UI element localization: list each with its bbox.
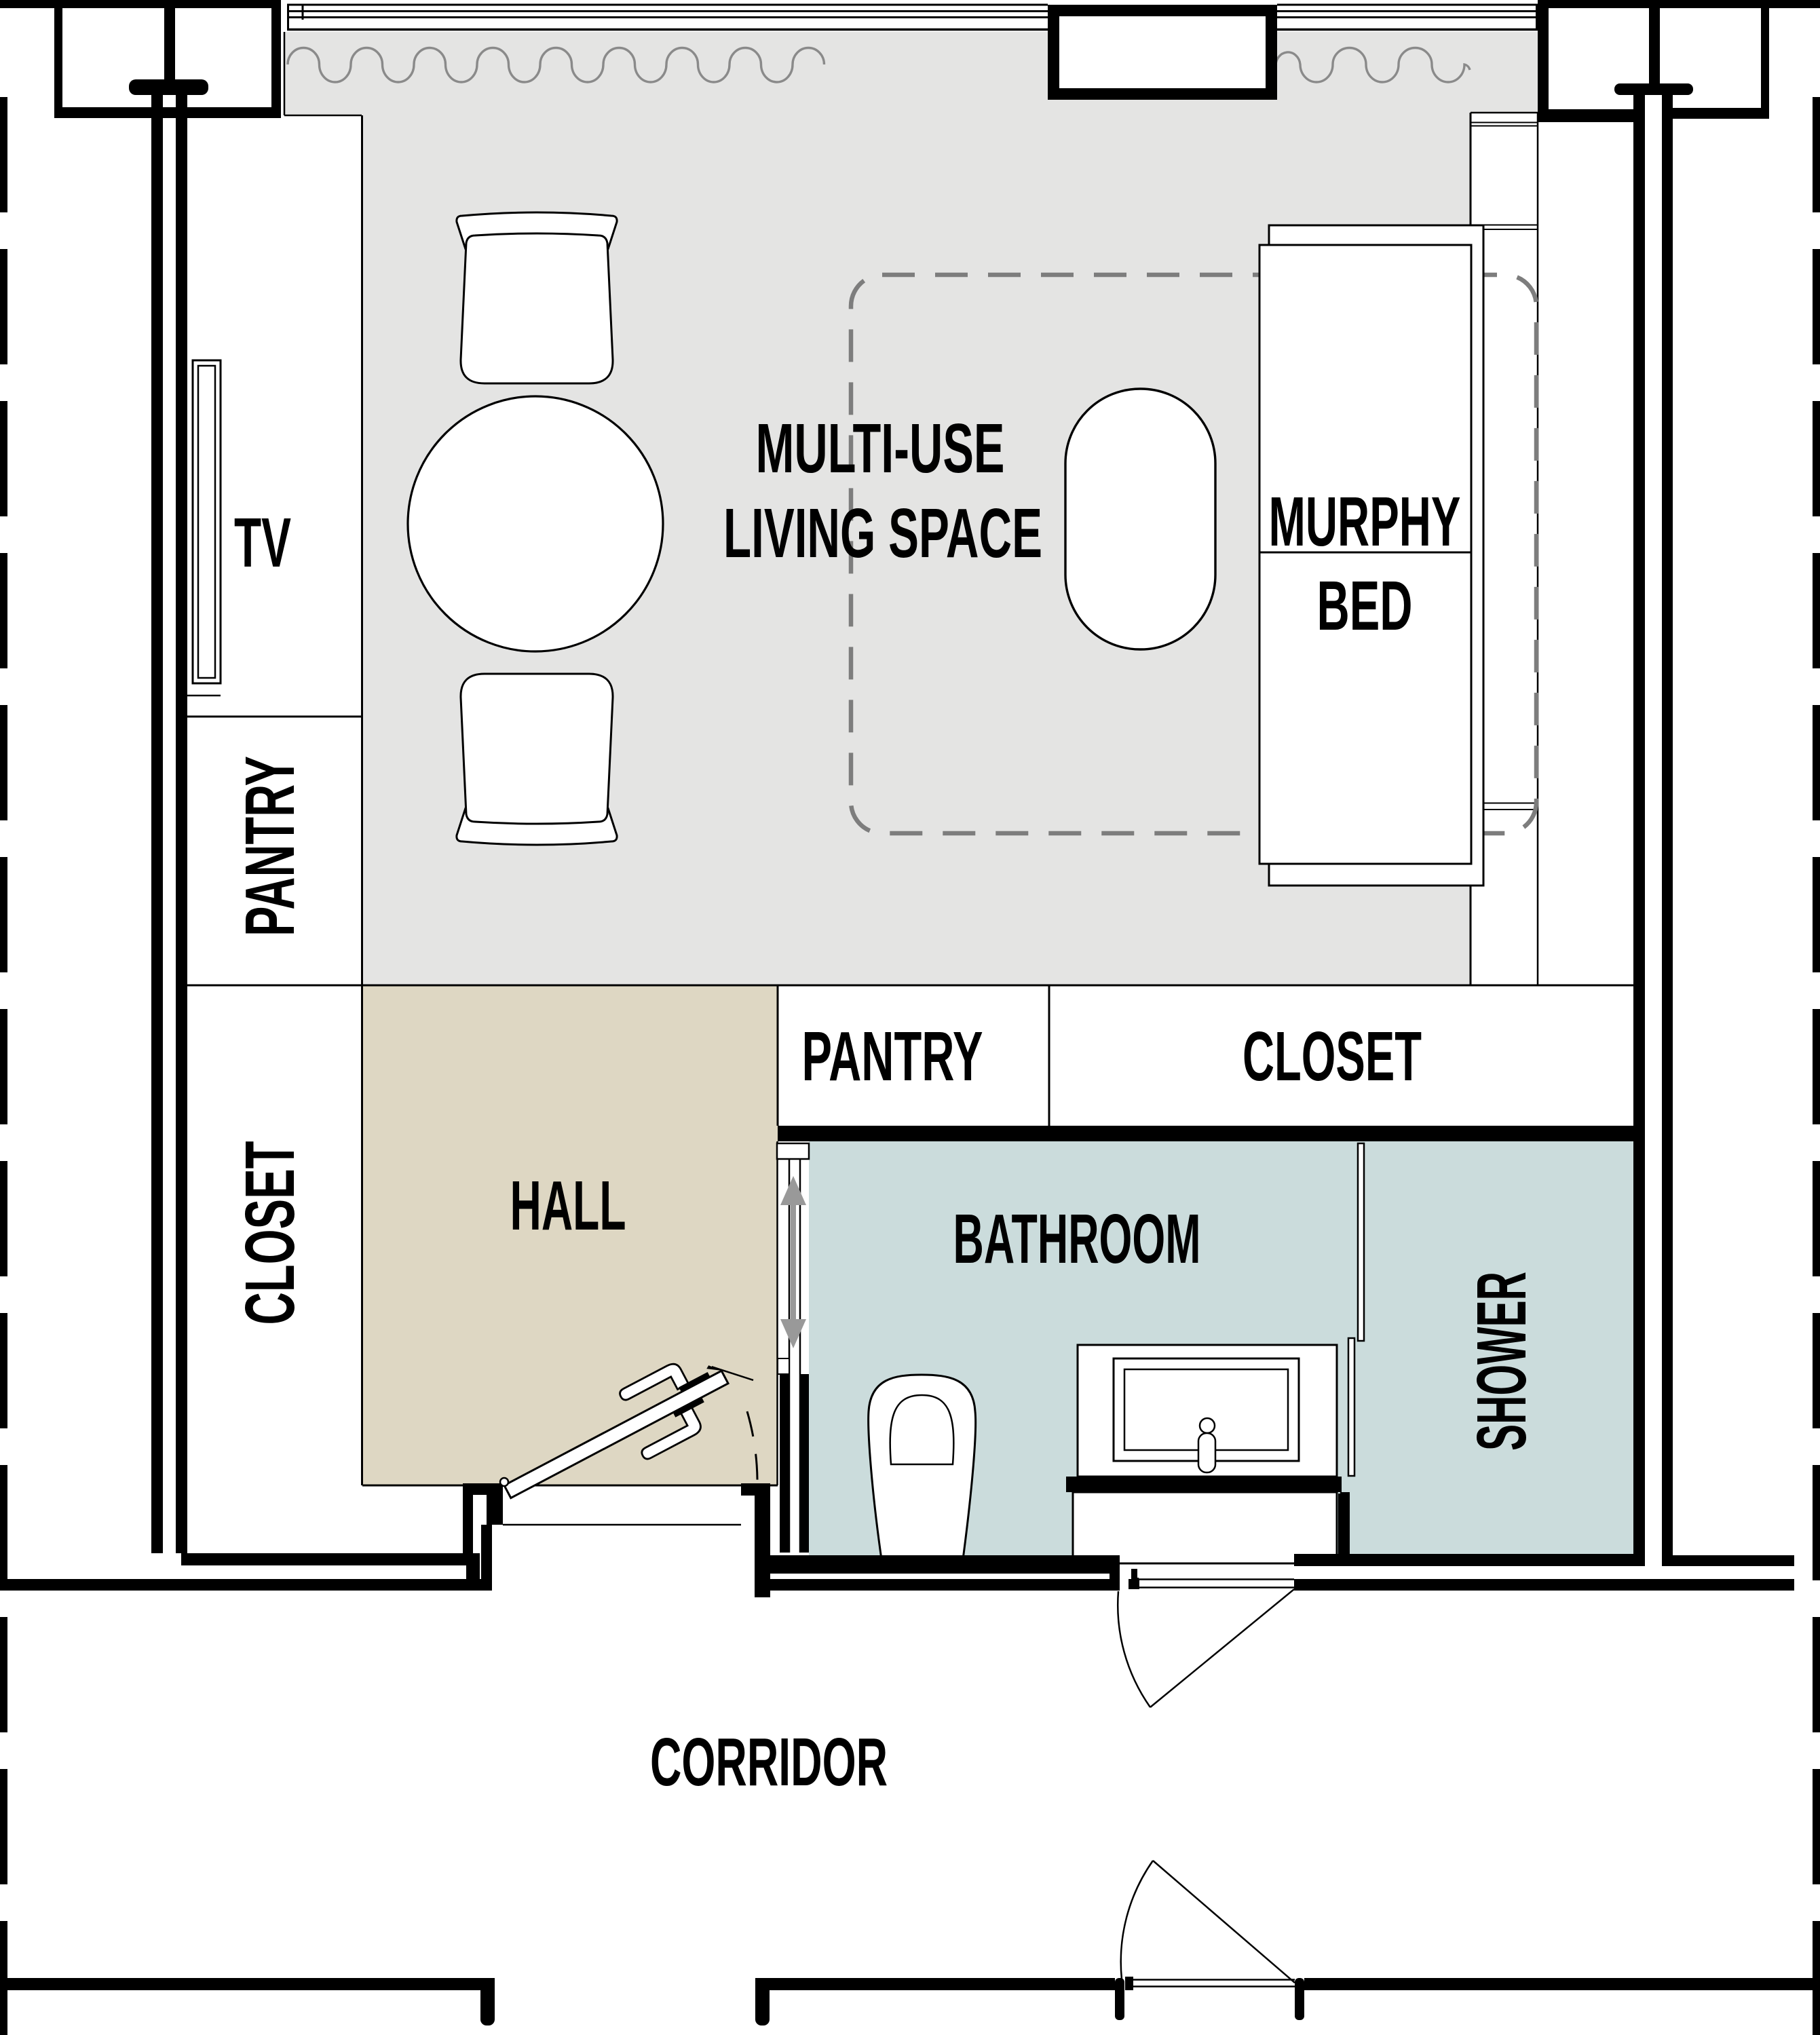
svg-text:TV: TV	[234, 503, 291, 582]
svg-text:LIVING SPACE: LIVING SPACE	[723, 494, 1042, 572]
svg-text:MURPHY: MURPHY	[1269, 482, 1461, 560]
svg-text:BED: BED	[1317, 567, 1413, 645]
svg-text:CLOSET: CLOSET	[231, 1141, 309, 1325]
svg-text:HALL: HALL	[510, 1166, 626, 1244]
svg-text:MULTI-USE: MULTI-USE	[756, 409, 1005, 487]
svg-text:SHOWER: SHOWER	[1462, 1272, 1540, 1451]
svg-text:CORRIDOR: CORRIDOR	[650, 1724, 888, 1800]
svg-text:PANTRY: PANTRY	[802, 1017, 983, 1095]
svg-text:BATHROOM: BATHROOM	[953, 1200, 1201, 1278]
svg-text:PANTRY: PANTRY	[231, 756, 309, 936]
svg-text:CLOSET: CLOSET	[1243, 1017, 1422, 1095]
